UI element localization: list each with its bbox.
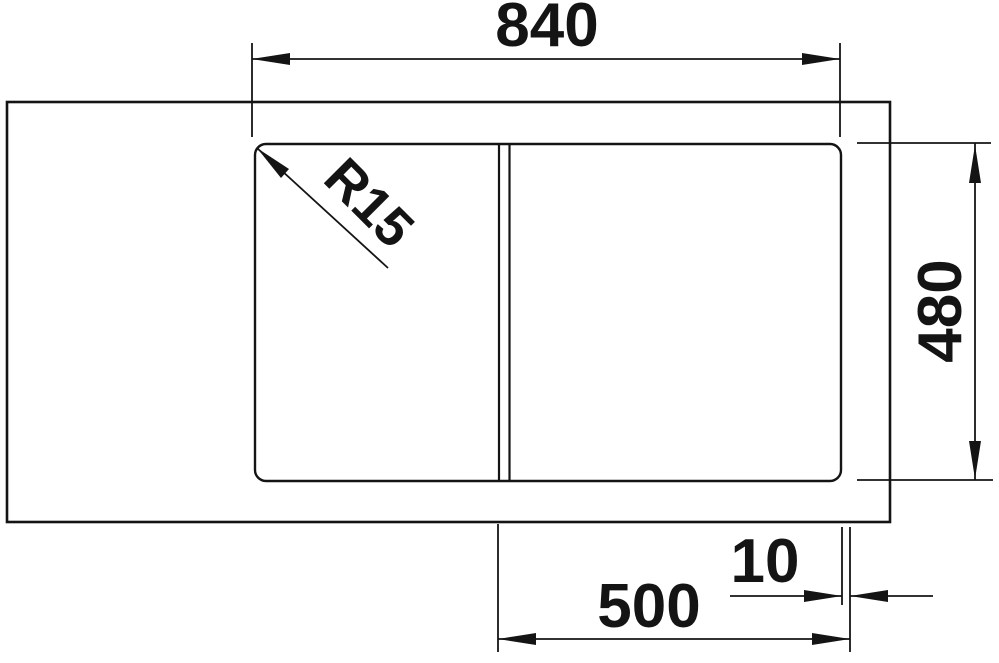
r15-arrow-icon [257, 148, 289, 178]
sink-dimension-drawing [0, 0, 999, 663]
dim-840-arrow-right-icon [802, 53, 840, 65]
dim-500-arrow-right-icon [812, 633, 850, 645]
technical-drawing-canvas: 840 480 R15 500 10 [0, 0, 999, 663]
dim-10-arrow-left-pointing-icon [850, 590, 888, 602]
dimension-label-edge-offset: 10 [731, 531, 800, 593]
dimension-label-overall-depth: 480 [910, 259, 972, 362]
dim-480-arrow-down-icon [969, 441, 981, 479]
sink-outlines [7, 102, 890, 522]
dim-10-arrow-right-pointing-icon [804, 590, 842, 602]
dimension-label-overall-width: 840 [495, 0, 598, 57]
dim-500-arrow-left-icon [498, 633, 536, 645]
dim-480-arrow-up-icon [969, 145, 981, 183]
dimension-label-bowl-width: 500 [597, 576, 700, 638]
dim-840-arrow-left-icon [252, 53, 290, 65]
sink-outer-outline [7, 102, 890, 522]
